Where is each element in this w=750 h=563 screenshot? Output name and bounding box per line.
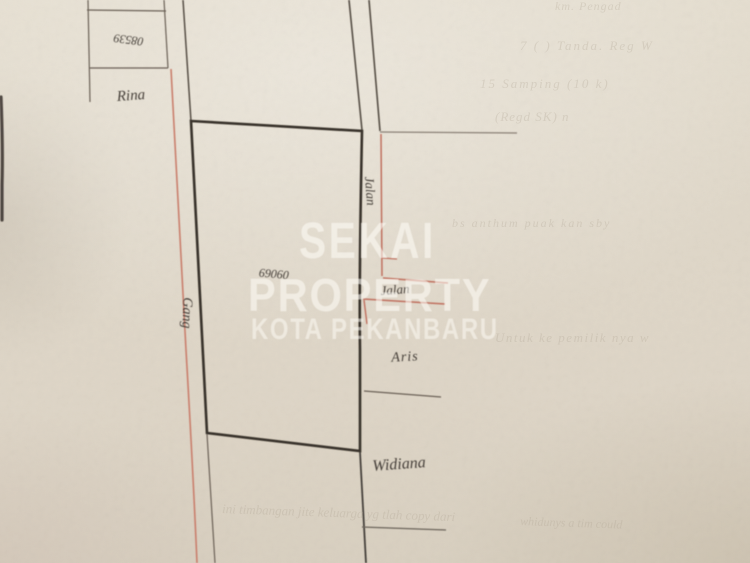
svg-text:7 ( ) Tanda. Reg W: 7 ( ) Tanda. Reg W [520, 38, 654, 53]
svg-text:ini timbangan jite keluarga yg: ini timbangan jite keluarga yg tlah copy… [222, 501, 456, 524]
svg-text:08539: 08539 [113, 31, 144, 49]
svg-text:15 Samping (10 k): 15 Samping (10 k) [480, 76, 610, 91]
svg-text:Gang: Gang [178, 297, 194, 329]
svg-text:whidunys a tim could: whidunys a tim could [520, 514, 624, 532]
svg-text:Untuk ke pemilik nya w: Untuk ke pemilik nya w [495, 330, 650, 345]
svg-text:Jalan: Jalan [362, 176, 379, 206]
svg-text:Aris: Aris [390, 349, 419, 365]
svg-text:Widiana: Widiana [372, 454, 426, 475]
svg-text:bs anthum puak kan sby: bs anthum puak kan sby [452, 216, 611, 230]
svg-text:(Regd SK) n: (Regd SK) n [495, 109, 570, 124]
svg-text:Rina: Rina [115, 87, 145, 105]
svg-text:km. Pengad: km. Pengad [555, 0, 622, 13]
